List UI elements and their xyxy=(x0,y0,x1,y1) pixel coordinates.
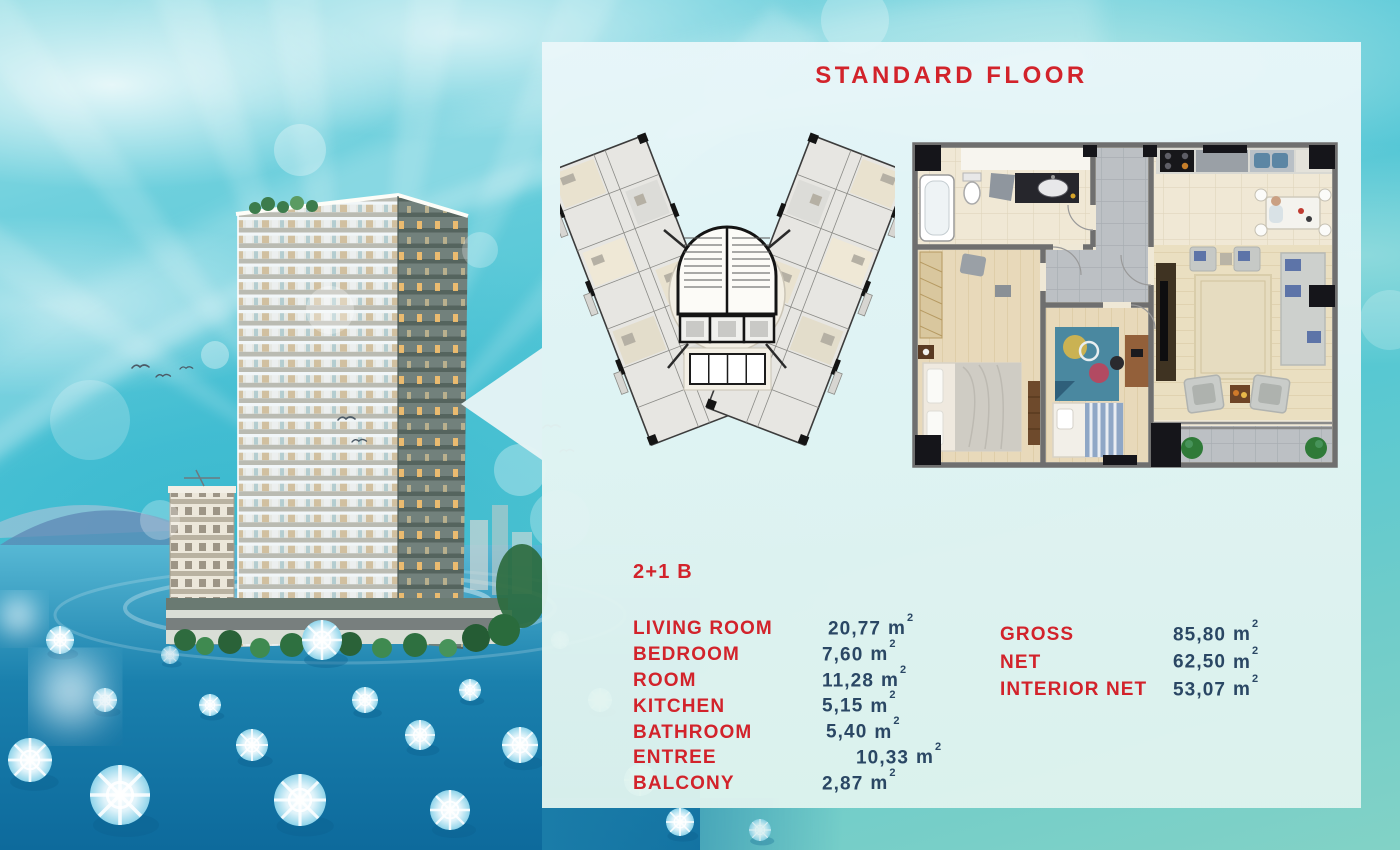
table-row: LIVING ROOM 20,77m2 xyxy=(633,614,942,640)
room-label: ENTREE xyxy=(633,747,822,769)
room-area-value: 11,28m2 xyxy=(822,666,907,692)
room-area-value: 5,15m2 xyxy=(822,691,897,717)
table-row: BATHROOM 5,40m2 xyxy=(633,717,942,743)
hall-floor xyxy=(1096,148,1148,302)
room-area-value: 7,60m2 xyxy=(822,640,897,666)
standard-floor-plate-plan xyxy=(560,118,895,483)
brochure-page: STANDARD FLOOR xyxy=(0,0,1400,850)
table-row: GROSS 85,80m2 xyxy=(1000,619,1259,646)
table-row: INTERIOR NET 53,07m2 xyxy=(1000,674,1259,701)
total-label: NET xyxy=(1000,652,1173,674)
table-row: BEDROOM 7,60m2 xyxy=(633,640,942,666)
elevators xyxy=(680,316,774,342)
room-areas-table: LIVING ROOM 20,77m2 BEDROOM 7,60m2 ROOM … xyxy=(633,614,942,795)
room-label: KITCHEN xyxy=(633,696,822,718)
table-row: BALCONY 2,87m2 xyxy=(633,769,942,795)
table-row: ENTREE 10,33m2 xyxy=(633,743,942,769)
room-area-value: 2,87m2 xyxy=(822,769,897,795)
page-title: STANDARD FLOOR xyxy=(542,62,1361,90)
room-label: ROOM xyxy=(633,670,822,692)
room-label: BALCONY xyxy=(633,773,822,795)
total-area-value: 85,80m2 xyxy=(1173,619,1259,646)
person xyxy=(1269,205,1283,223)
unit-type-label: 2+1 B xyxy=(633,561,693,584)
total-area-value: 53,07m2 xyxy=(1173,674,1259,701)
table-row: KITCHEN 5,15m2 xyxy=(633,691,942,717)
total-area-value: 62,50m2 xyxy=(1173,646,1259,673)
room-area-value: 5,40m2 xyxy=(826,717,901,743)
residential-tower xyxy=(236,190,468,652)
room-label: LIVING ROOM xyxy=(633,618,822,640)
room-label: BEDROOM xyxy=(633,644,822,666)
room-area-value: 10,33m2 xyxy=(856,743,942,769)
room-area-value: 20,77m2 xyxy=(828,614,914,640)
apartment-plan-2plus1b xyxy=(903,135,1353,485)
totals-table: GROSS 85,80m2 NET 62,50m2 INTERIOR NET 5… xyxy=(1000,619,1259,701)
lobby-windows xyxy=(690,354,765,384)
total-label: GROSS xyxy=(1000,624,1173,646)
table-row: ROOM 11,28m2 xyxy=(633,666,942,692)
total-label: INTERIOR NET xyxy=(1000,679,1173,701)
table-row: NET 62,50m2 xyxy=(1000,646,1259,673)
room-label: BATHROOM xyxy=(633,722,822,744)
